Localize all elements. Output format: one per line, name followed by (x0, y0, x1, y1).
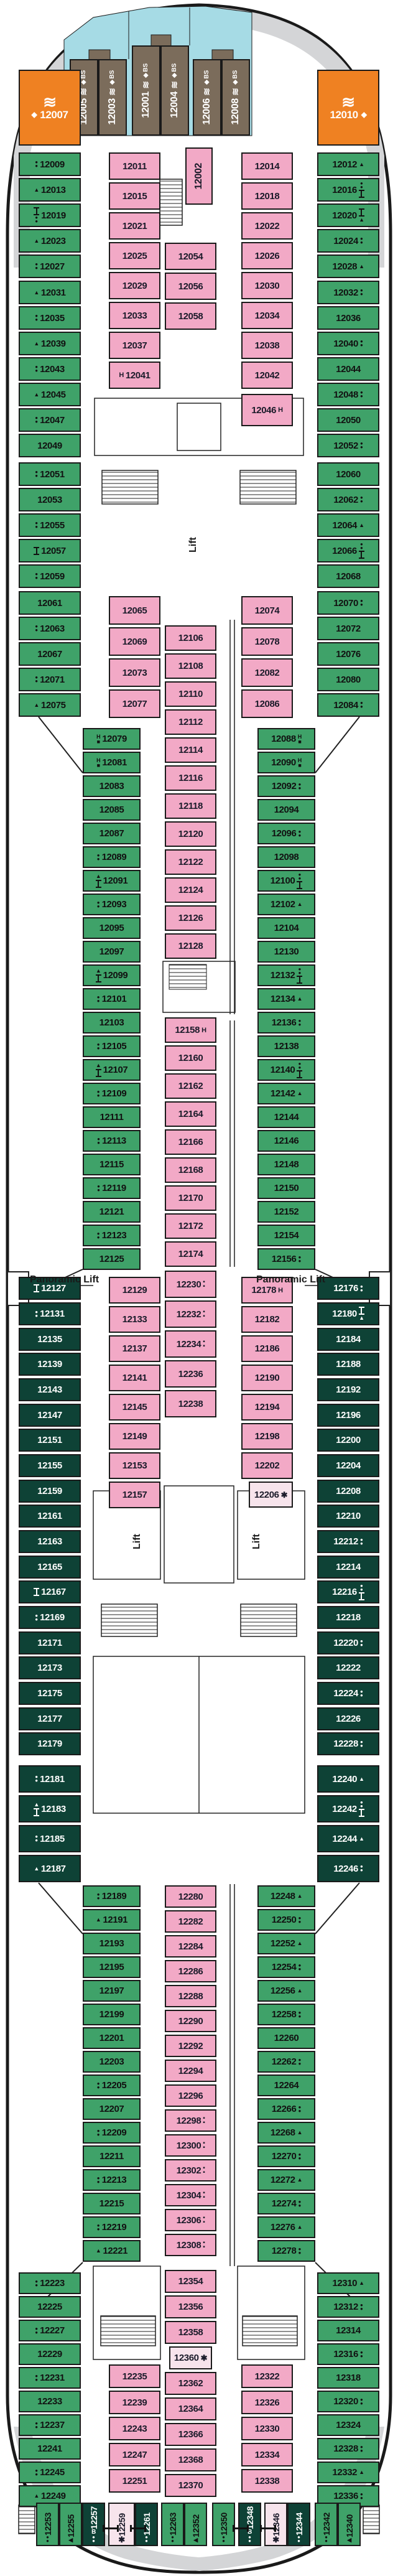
cabin-12043[interactable]: ●●12043 (19, 357, 81, 381)
cabin-12210[interactable]: 12210 (317, 1505, 379, 1528)
cabin-12350[interactable]: 12350●● (212, 2503, 235, 2546)
cabin-12172[interactable]: 12172 (165, 1213, 216, 1239)
cabin-12062[interactable]: 12062●● (317, 488, 379, 511)
cabin-12288[interactable]: 12288 (165, 1985, 216, 2007)
cabin-12019[interactable]: ●●12019 (19, 203, 81, 227)
cabin-12046[interactable]: 12046H (241, 394, 293, 426)
cabin-12226[interactable]: 12226 (317, 1707, 379, 1730)
cabin-12163[interactable]: 12163 (19, 1530, 81, 1553)
cabin-12194[interactable]: 12194 (241, 1394, 293, 1421)
cabin-12174[interactable]: 12174 (165, 1241, 216, 1267)
cabin-12320[interactable]: 12320●● (317, 2391, 379, 2412)
cabin-12044[interactable]: 12044 (317, 357, 379, 381)
cabin-12126[interactable]: 12126 (165, 905, 216, 931)
cabin-12099[interactable]: ▲12099 (83, 964, 141, 986)
cabin-12008[interactable]: 12008≋◆BS (221, 59, 250, 136)
cabin-12078[interactable]: 12078 (241, 627, 293, 656)
cabin-12152[interactable]: 12152 (257, 1201, 315, 1223)
cabin-12128[interactable]: 12128 (165, 933, 216, 959)
cabin-12186[interactable]: 12186 (241, 1335, 293, 1362)
cabin-12245[interactable]: ●●12245 (19, 2462, 81, 2483)
cabin-12131[interactable]: ●●12131 (19, 1302, 81, 1325)
cabin-12100[interactable]: 12100●● (257, 870, 315, 892)
cabin-12013[interactable]: ▲12013 (19, 178, 81, 202)
cabin-12220[interactable]: 12220●● (317, 1631, 379, 1654)
cabin-12111[interactable]: 12111 (83, 1106, 141, 1128)
cabin-12042[interactable]: 12042 (241, 362, 293, 389)
cabin-12146[interactable]: 12146 (257, 1130, 315, 1152)
cabin-12264[interactable]: 12264 (257, 2074, 315, 2096)
cabin-12064[interactable]: 12064▲ (317, 513, 379, 537)
cabin-12184[interactable]: 12184 (317, 1328, 379, 1351)
cabin-12195[interactable]: 12195 (83, 1956, 141, 1978)
cabin-12173[interactable]: 12173 (19, 1656, 81, 1679)
cabin-12159[interactable]: 12159 (19, 1480, 81, 1503)
cabin-12224[interactable]: 12224●● (317, 1682, 379, 1705)
cabin-12106[interactable]: 12106 (165, 625, 216, 651)
cabin-12263[interactable]: 12263●● (161, 2503, 184, 2546)
cabin-12193[interactable]: 12193 (83, 1933, 141, 1954)
cabin-12166[interactable]: 12166 (165, 1129, 216, 1155)
cabin-12203[interactable]: 12203 (83, 2051, 141, 2073)
cabin-12025[interactable]: 12025 (109, 242, 160, 269)
cabin-12028[interactable]: 12028▲ (317, 254, 379, 278)
cabin-12180[interactable]: 12180▲ (317, 1302, 379, 1325)
cabin-12255[interactable]: 12255◀ (59, 2503, 82, 2546)
cabin-12144[interactable]: 12144 (257, 1106, 315, 1128)
cabin-12233[interactable]: 12233 (19, 2391, 81, 2412)
cabin-12237[interactable]: ●●12237 (19, 2414, 81, 2436)
cabin-12276[interactable]: 12276▲ (257, 2216, 315, 2238)
cabin-12158[interactable]: 12158H (165, 1017, 216, 1043)
cabin-12088[interactable]: 12088H■ (257, 728, 315, 750)
cabin-12232[interactable]: 12232▪▪ (165, 1300, 216, 1328)
cabin-12302[interactable]: 12302▪▪ (165, 2159, 216, 2182)
cabin-12219[interactable]: ●●12219 (83, 2216, 141, 2238)
cabin-12181[interactable]: ●●12181 (19, 1765, 81, 1793)
cabin-12229[interactable]: 12229 (19, 2343, 81, 2365)
cabin-12270[interactable]: 12270●● (257, 2145, 315, 2167)
cabin-12104[interactable]: 12104 (257, 917, 315, 939)
cabin-12087[interactable]: 12087 (83, 823, 141, 844)
cabin-12364[interactable]: 12364 (165, 2397, 216, 2420)
cabin-12143[interactable]: 12143 (19, 1378, 81, 1401)
cabin-12068[interactable]: 12068 (317, 564, 379, 588)
cabin-12080[interactable]: 12080 (317, 668, 379, 691)
cabin-12125[interactable]: 12125 (83, 1248, 141, 1270)
cabin-12334[interactable]: 12334 (241, 2443, 293, 2466)
cabin-12326[interactable]: 12326 (241, 2391, 293, 2414)
cabin-12002[interactable]: 12002 (185, 147, 213, 205)
cabin-12051[interactable]: ●●12051 (19, 462, 81, 486)
cabin-12107[interactable]: ▲12107 (83, 1059, 141, 1081)
cabin-12050[interactable]: 12050 (317, 408, 379, 432)
cabin-12344[interactable]: 12344●● (287, 2503, 310, 2546)
cabin-12208[interactable]: 12208 (317, 1480, 379, 1503)
cabin-12012[interactable]: 12012▲ (317, 152, 379, 176)
cabin-12304[interactable]: 12304▪▪ (165, 2184, 216, 2206)
cabin-12130[interactable]: 12130 (257, 941, 315, 963)
cabin-12235[interactable]: 12235 (109, 2364, 160, 2388)
cabin-12066[interactable]: 12066●● (317, 539, 379, 562)
cabin-12213[interactable]: ●●12213 (83, 2169, 141, 2191)
cabin-12149[interactable]: 12149 (109, 1423, 160, 1450)
cabin-12150[interactable]: 12150 (257, 1177, 315, 1199)
cabin-12093[interactable]: ●●12093 (83, 894, 141, 915)
cabin-12073[interactable]: 12073 (109, 658, 160, 687)
cabin-12018[interactable]: 12018 (241, 182, 293, 210)
cabin-12041[interactable]: H12041 (109, 362, 160, 389)
cabin-12221[interactable]: ▲12221 (83, 2240, 141, 2262)
cabin-12261[interactable]: 12261●● (135, 2503, 158, 2546)
cabin-12048[interactable]: 12048●● (317, 383, 379, 406)
cabin-12298[interactable]: 12298▪▪ (165, 2109, 216, 2132)
cabin-12314[interactable]: 12314 (317, 2320, 379, 2341)
cabin-12201[interactable]: 12201 (83, 2027, 141, 2049)
cabin-12248[interactable]: 12248▲ (257, 1885, 315, 1907)
cabin-12138[interactable]: 12138 (257, 1035, 315, 1057)
cabin-12328[interactable]: 12328●● (317, 2438, 379, 2460)
cabin-12069[interactable]: 12069 (109, 627, 160, 656)
cabin-12020[interactable]: 12020▲ (317, 203, 379, 227)
cabin-12209[interactable]: ●●12209 (83, 2122, 141, 2144)
cabin-12366[interactable]: 12366 (165, 2423, 216, 2446)
cabin-12251[interactable]: 12251 (109, 2469, 160, 2493)
cabin-12134[interactable]: 12134▲ (257, 988, 315, 1010)
cabin-12278[interactable]: 12278●● (257, 2240, 315, 2262)
cabin-12214[interactable]: 12214 (317, 1556, 379, 1579)
cabin-12133[interactable]: 12133 (109, 1306, 160, 1333)
cabin-12036[interactable]: 12036 (317, 306, 379, 330)
cabin-12035[interactable]: ●●12035 (19, 306, 81, 330)
cabin-12175[interactable]: 12175 (19, 1682, 81, 1705)
cabin-12310[interactable]: 12310▲ (317, 2272, 379, 2294)
cabin-12079[interactable]: H■12079 (83, 728, 141, 750)
cabin-12211[interactable]: 12211 (83, 2145, 141, 2167)
cabin-12034[interactable]: 12034 (241, 302, 293, 329)
cabin-12274[interactable]: 12274●● (257, 2193, 315, 2214)
cabin-12108[interactable]: 12108 (165, 653, 216, 679)
cabin-12123[interactable]: ●●12123 (83, 1225, 141, 1246)
cabin-12011[interactable]: 12011 (109, 152, 160, 180)
cabin-12120[interactable]: 12120 (165, 821, 216, 847)
cabin-12171[interactable]: 12171 (19, 1631, 81, 1654)
cabin-12089[interactable]: ●●12089 (83, 846, 141, 868)
cabin-12024[interactable]: 12024●● (317, 229, 379, 253)
cabin-12110[interactable]: 12110 (165, 681, 216, 707)
cabin-12022[interactable]: 12022 (241, 212, 293, 240)
cabin-12026[interactable]: 12026 (241, 242, 293, 269)
cabin-12188[interactable]: 12188 (317, 1353, 379, 1376)
cabin-12140[interactable]: 12140●● (257, 1059, 315, 1081)
cabin-12056[interactable]: 12056 (165, 273, 216, 300)
cabin-12218[interactable]: 12218 (317, 1606, 379, 1629)
cabin-12252[interactable]: 12252▲ (257, 1933, 315, 1954)
cabin-12254[interactable]: 12254●● (257, 1956, 315, 1978)
cabin-12189[interactable]: ●●12189 (83, 1885, 141, 1907)
cabin-12015[interactable]: 12015 (109, 182, 160, 210)
cabin-12177[interactable]: 12177 (19, 1707, 81, 1730)
cabin-12198[interactable]: 12198 (241, 1423, 293, 1450)
cabin-12187[interactable]: ▲12187 (19, 1855, 81, 1882)
cabin-12240[interactable]: 12240▲ (317, 1765, 379, 1793)
cabin-12266[interactable]: 12266●● (257, 2098, 315, 2120)
cabin-12095[interactable]: 12095 (83, 917, 141, 939)
cabin-12067[interactable]: 12067 (19, 642, 81, 666)
cabin-12156[interactable]: 12156●● (257, 1248, 315, 1270)
cabin-12132[interactable]: 12132●● (257, 964, 315, 986)
cabin-12003[interactable]: 12003≋◆BS (98, 59, 127, 136)
cabin-12342[interactable]: 12342●● (315, 2503, 338, 2546)
cabin-12262[interactable]: 12262●● (257, 2051, 315, 2073)
cabin-12031[interactable]: ▲12031 (19, 281, 81, 304)
cabin-12162[interactable]: 12162 (165, 1073, 216, 1099)
cabin-12016[interactable]: 12016●● (317, 178, 379, 202)
cabin-12183[interactable]: ▲12183 (19, 1795, 81, 1822)
cabin-12358[interactable]: 12358 (165, 2321, 216, 2344)
cabin-12204[interactable]: 12204 (317, 1454, 379, 1477)
cabin-12033[interactable]: 12033 (109, 302, 160, 329)
cabin-12260[interactable]: 12260 (257, 2027, 315, 2049)
cabin-12070[interactable]: 12070●● (317, 591, 379, 615)
cabin-12360[interactable]: 12360✱ (169, 2346, 212, 2369)
cabin-12300[interactable]: 12300▪▪ (165, 2134, 216, 2157)
cabin-12259[interactable]: 12259✱ (108, 2503, 135, 2546)
cabin-12196[interactable]: 12196 (317, 1404, 379, 1427)
cabin-12055[interactable]: ●●12055 (19, 513, 81, 537)
cabin-12092[interactable]: 12092●● (257, 775, 315, 797)
cabin-12234[interactable]: 12234▪▪ (165, 1330, 216, 1358)
cabin-12057[interactable]: 12057 (19, 539, 81, 562)
cabin-12082[interactable]: 12082 (241, 658, 293, 687)
cabin-12243[interactable]: 12243 (109, 2417, 160, 2440)
cabin-12039[interactable]: ▲12039 (19, 332, 81, 355)
cabin-12236[interactable]: 12236 (165, 1360, 216, 1388)
cabin-12306[interactable]: 12306▪▪ (165, 2209, 216, 2231)
cabin-12356[interactable]: 12356 (165, 2295, 216, 2318)
cabin-12324[interactable]: 12324 (317, 2414, 379, 2436)
cabin-12253[interactable]: 12253●● (36, 2503, 59, 2546)
cabin-12076[interactable]: 12076 (317, 642, 379, 666)
cabin-12238[interactable]: 12238 (165, 1390, 216, 1417)
cabin-12227[interactable]: ●●12227 (19, 2320, 81, 2341)
cabin-12077[interactable]: 12077 (109, 689, 160, 718)
cabin-12037[interactable]: 12037 (109, 332, 160, 359)
cabin-12161[interactable]: 12161 (19, 1505, 81, 1528)
cabin-12308[interactable]: 12308▪▪ (165, 2234, 216, 2256)
cabin-12176[interactable]: 12176●● (317, 1277, 379, 1300)
cabin-12010[interactable]: ≋12010◆ (317, 70, 379, 146)
cabin-12179[interactable]: 12179 (19, 1732, 81, 1755)
cabin-12242[interactable]: 12242●● (317, 1795, 379, 1822)
cabin-12284[interactable]: 12284 (165, 1935, 216, 1958)
cabin-12101[interactable]: ●●12101 (83, 988, 141, 1010)
cabin-12222[interactable]: 12222 (317, 1656, 379, 1679)
cabin-12170[interactable]: 12170 (165, 1185, 216, 1211)
cabin-12312[interactable]: 12312●● (317, 2296, 379, 2318)
cabin-12286[interactable]: 12286 (165, 1960, 216, 1982)
cabin-12202[interactable]: 12202 (241, 1452, 293, 1479)
cabin-12053[interactable]: 12053 (19, 488, 81, 511)
cabin-12075[interactable]: ▲12075 (19, 693, 81, 717)
cabin-12029[interactable]: 12029 (109, 272, 160, 299)
cabin-12246[interactable]: 12246●● (317, 1855, 379, 1882)
cabin-12137[interactable]: 12137 (109, 1335, 160, 1362)
cabin-12340[interactable]: 12340◀ (338, 2503, 361, 2546)
cabin-12258[interactable]: 12258●● (257, 2004, 315, 2025)
cabin-12121[interactable]: 12121 (83, 1201, 141, 1223)
cabin-12119[interactable]: ●●12119 (83, 1177, 141, 1199)
cabin-12102[interactable]: 12102▲ (257, 894, 315, 915)
cabin-12216[interactable]: 12216●● (317, 1580, 379, 1603)
cabin-12124[interactable]: 12124 (165, 877, 216, 903)
cabin-12292[interactable]: 12292 (165, 2035, 216, 2057)
cabin-12257[interactable]: 12257B●● (82, 2503, 105, 2546)
cabin-12241[interactable]: 12241 (19, 2438, 81, 2460)
cabin-12330[interactable]: 12330 (241, 2417, 293, 2440)
cabin-12014[interactable]: 12014 (241, 152, 293, 180)
cabin-12136[interactable]: 12136●● (257, 1012, 315, 1034)
cabin-12167[interactable]: 12167 (19, 1580, 81, 1603)
cabin-12142[interactable]: 12142▲ (257, 1083, 315, 1104)
cabin-12071[interactable]: ●●12071 (19, 668, 81, 691)
cabin-12060[interactable]: 12060 (317, 462, 379, 486)
cabin-12114[interactable]: 12114 (165, 737, 216, 763)
cabin-12115[interactable]: 12115 (83, 1154, 141, 1175)
cabin-12147[interactable]: 12147 (19, 1404, 81, 1427)
cabin-12109[interactable]: ●●12109 (83, 1083, 141, 1104)
cabin-12231[interactable]: ●●12231 (19, 2367, 81, 2389)
cabin-12038[interactable]: 12038 (241, 332, 293, 359)
cabin-12282[interactable]: 12282 (165, 1910, 216, 1933)
cabin-12212[interactable]: 12212●● (317, 1530, 379, 1553)
cabin-12247[interactable]: 12247 (109, 2443, 160, 2466)
cabin-12113[interactable]: ●●12113 (83, 1130, 141, 1152)
cabin-12250[interactable]: 12250●● (257, 1909, 315, 1931)
cabin-12290[interactable]: 12290 (165, 2010, 216, 2032)
cabin-12122[interactable]: 12122 (165, 849, 216, 875)
cabin-12348[interactable]: 12348B●● (238, 2503, 261, 2546)
cabin-12322[interactable]: 12322 (241, 2364, 293, 2388)
cabin-12091[interactable]: ▲12091 (83, 870, 141, 892)
cabin-12112[interactable]: 12112 (165, 709, 216, 735)
cabin-12009[interactable]: ●●12009 (19, 152, 81, 176)
cabin-12001[interactable]: 12001≋◆BS (132, 45, 160, 136)
cabin-12228[interactable]: 12228●● (317, 1732, 379, 1755)
cabin-12021[interactable]: 12021 (109, 212, 160, 240)
cabin-12168[interactable]: 12168 (165, 1157, 216, 1183)
cabin-12084[interactable]: 12084●● (317, 693, 379, 717)
cabin-12190[interactable]: 12190 (241, 1365, 293, 1391)
cabin-12169[interactable]: ●●12169 (19, 1606, 81, 1629)
cabin-12047[interactable]: ●●12047 (19, 408, 81, 432)
cabin-12103[interactable]: 12103 (83, 1012, 141, 1034)
cabin-12205[interactable]: ●●12205 (83, 2074, 141, 2096)
cabin-12030[interactable]: 12030 (241, 272, 293, 299)
cabin-12059[interactable]: ●●12059 (19, 564, 81, 588)
cabin-12045[interactable]: ▲12045 (19, 383, 81, 406)
cabin-12182[interactable]: 12182 (241, 1306, 293, 1333)
cabin-12160[interactable]: 12160 (165, 1045, 216, 1071)
cabin-12058[interactable]: 12058 (165, 302, 216, 330)
cabin-12116[interactable]: 12116 (165, 765, 216, 791)
cabin-12007[interactable]: ≋◆12007 (19, 70, 81, 146)
cabin-12368[interactable]: 12368 (165, 2448, 216, 2471)
cabin-12006[interactable]: 12006≋◆BS (193, 59, 221, 136)
cabin-12151[interactable]: 12151 (19, 1429, 81, 1452)
cabin-12065[interactable]: 12065 (109, 596, 160, 625)
cabin-12098[interactable]: 12098 (257, 846, 315, 868)
cabin-12004[interactable]: 12004≋◆BS (160, 45, 189, 136)
cabin-12081[interactable]: H■12081 (83, 752, 141, 773)
cabin-12199[interactable]: 12199 (83, 2004, 141, 2025)
cabin-12129[interactable]: 12129 (109, 1277, 160, 1304)
cabin-12272[interactable]: 12272▲ (257, 2169, 315, 2191)
cabin-12097[interactable]: 12097 (83, 941, 141, 963)
cabin-12370[interactable]: 12370 (165, 2474, 216, 2497)
cabin-12256[interactable]: 12256▲ (257, 1980, 315, 2002)
cabin-12032[interactable]: 12032●● (317, 281, 379, 304)
cabin-12090[interactable]: 12090H■ (257, 752, 315, 773)
cabin-12352[interactable]: 12352◀ (184, 2503, 207, 2546)
cabin-12164[interactable]: 12164 (165, 1101, 216, 1127)
cabin-12105[interactable]: ●●12105 (83, 1035, 141, 1057)
cabin-12040[interactable]: 12040●● (317, 332, 379, 355)
cabin-12145[interactable]: 12145 (109, 1394, 160, 1421)
cabin-12223[interactable]: ●●12223 (19, 2272, 81, 2294)
cabin-12244[interactable]: 12244▲ (317, 1825, 379, 1852)
cabin-12154[interactable]: 12154 (257, 1225, 315, 1246)
cabin-12141[interactable]: 12141 (109, 1365, 160, 1391)
cabin-12118[interactable]: 12118 (165, 793, 216, 819)
cabin-12155[interactable]: 12155 (19, 1454, 81, 1477)
cabin-12085[interactable]: 12085 (83, 799, 141, 821)
cabin-12200[interactable]: 12200 (317, 1429, 379, 1452)
cabin-12139[interactable]: 12139 (19, 1353, 81, 1376)
cabin-12135[interactable]: 12135 (19, 1328, 81, 1351)
cabin-12027[interactable]: ●●12027 (19, 254, 81, 278)
cabin-12074[interactable]: 12074 (241, 596, 293, 625)
cabin-12165[interactable]: 12165 (19, 1556, 81, 1579)
cabin-12197[interactable]: 12197 (83, 1980, 141, 2002)
cabin-12332[interactable]: 12332▲ (317, 2462, 379, 2483)
cabin-12061[interactable]: 12061 (19, 591, 81, 615)
cabin-12148[interactable]: 12148 (257, 1154, 315, 1175)
cabin-12354[interactable]: 12354 (165, 2270, 216, 2293)
cabin-12072[interactable]: 12072 (317, 617, 379, 640)
cabin-12063[interactable]: ●●12063 (19, 617, 81, 640)
cabin-12230[interactable]: 12230▪▪ (165, 1271, 216, 1298)
cabin-12023[interactable]: ▲12023 (19, 229, 81, 253)
cabin-12294[interactable]: 12294 (165, 2060, 216, 2082)
cabin-12094[interactable]: 12094 (257, 799, 315, 821)
cabin-12192[interactable]: 12192 (317, 1378, 379, 1401)
cabin-12083[interactable]: 12083 (83, 775, 141, 797)
cabin-12280[interactable]: 12280 (165, 1885, 216, 1908)
cabin-12191[interactable]: ▲12191 (83, 1909, 141, 1931)
cabin-12318[interactable]: 12318 (317, 2367, 379, 2389)
cabin-12239[interactable]: 12239 (109, 2391, 160, 2414)
cabin-12225[interactable]: 12225 (19, 2296, 81, 2318)
cabin-12049[interactable]: 12049 (19, 434, 81, 457)
cabin-12346[interactable]: 12346✱ (264, 2503, 287, 2546)
cabin-12086[interactable]: 12086 (241, 689, 293, 718)
cabin-12185[interactable]: ●●12185 (19, 1825, 81, 1852)
cabin-12268[interactable]: 12268▲ (257, 2122, 315, 2144)
cabin-12207[interactable]: 12207 (83, 2098, 141, 2120)
cabin-12153[interactable]: 12153 (109, 1452, 160, 1479)
cabin-12296[interactable]: 12296 (165, 2084, 216, 2107)
